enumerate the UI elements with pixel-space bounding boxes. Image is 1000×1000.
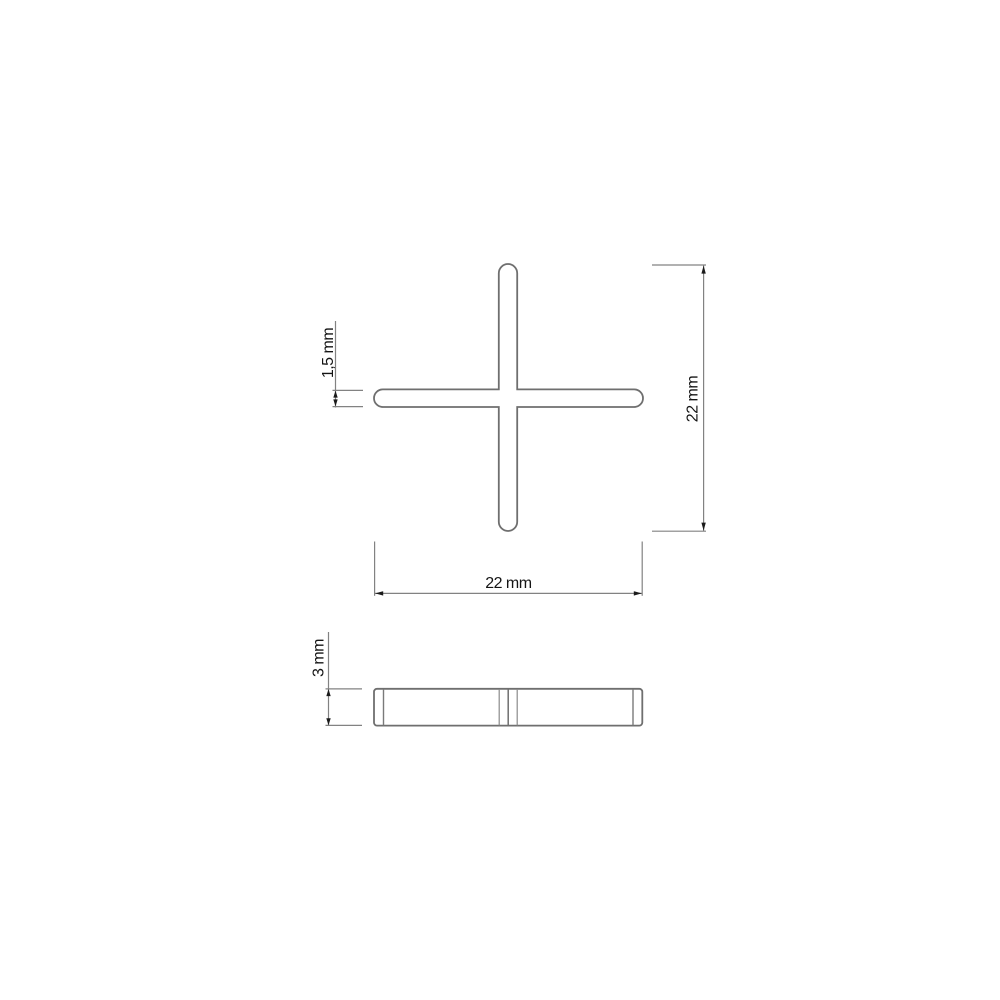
svg-text:22 mm: 22 mm [685,376,702,423]
svg-text:22 mm: 22 mm [485,575,532,592]
svg-text:1,5 mm: 1,5 mm [320,328,337,379]
svg-text:3 mm: 3 mm [311,639,328,677]
